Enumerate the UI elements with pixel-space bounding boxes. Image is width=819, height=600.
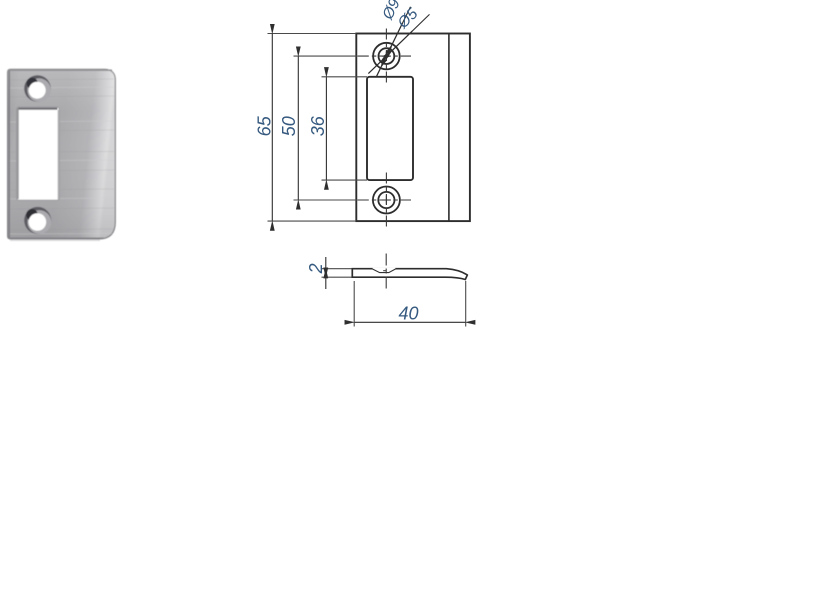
svg-text:40: 40 bbox=[398, 304, 418, 324]
svg-text:36: 36 bbox=[308, 115, 328, 136]
svg-text:50: 50 bbox=[279, 116, 299, 136]
svg-text:2: 2 bbox=[306, 263, 326, 274]
svg-text:65: 65 bbox=[255, 115, 275, 136]
